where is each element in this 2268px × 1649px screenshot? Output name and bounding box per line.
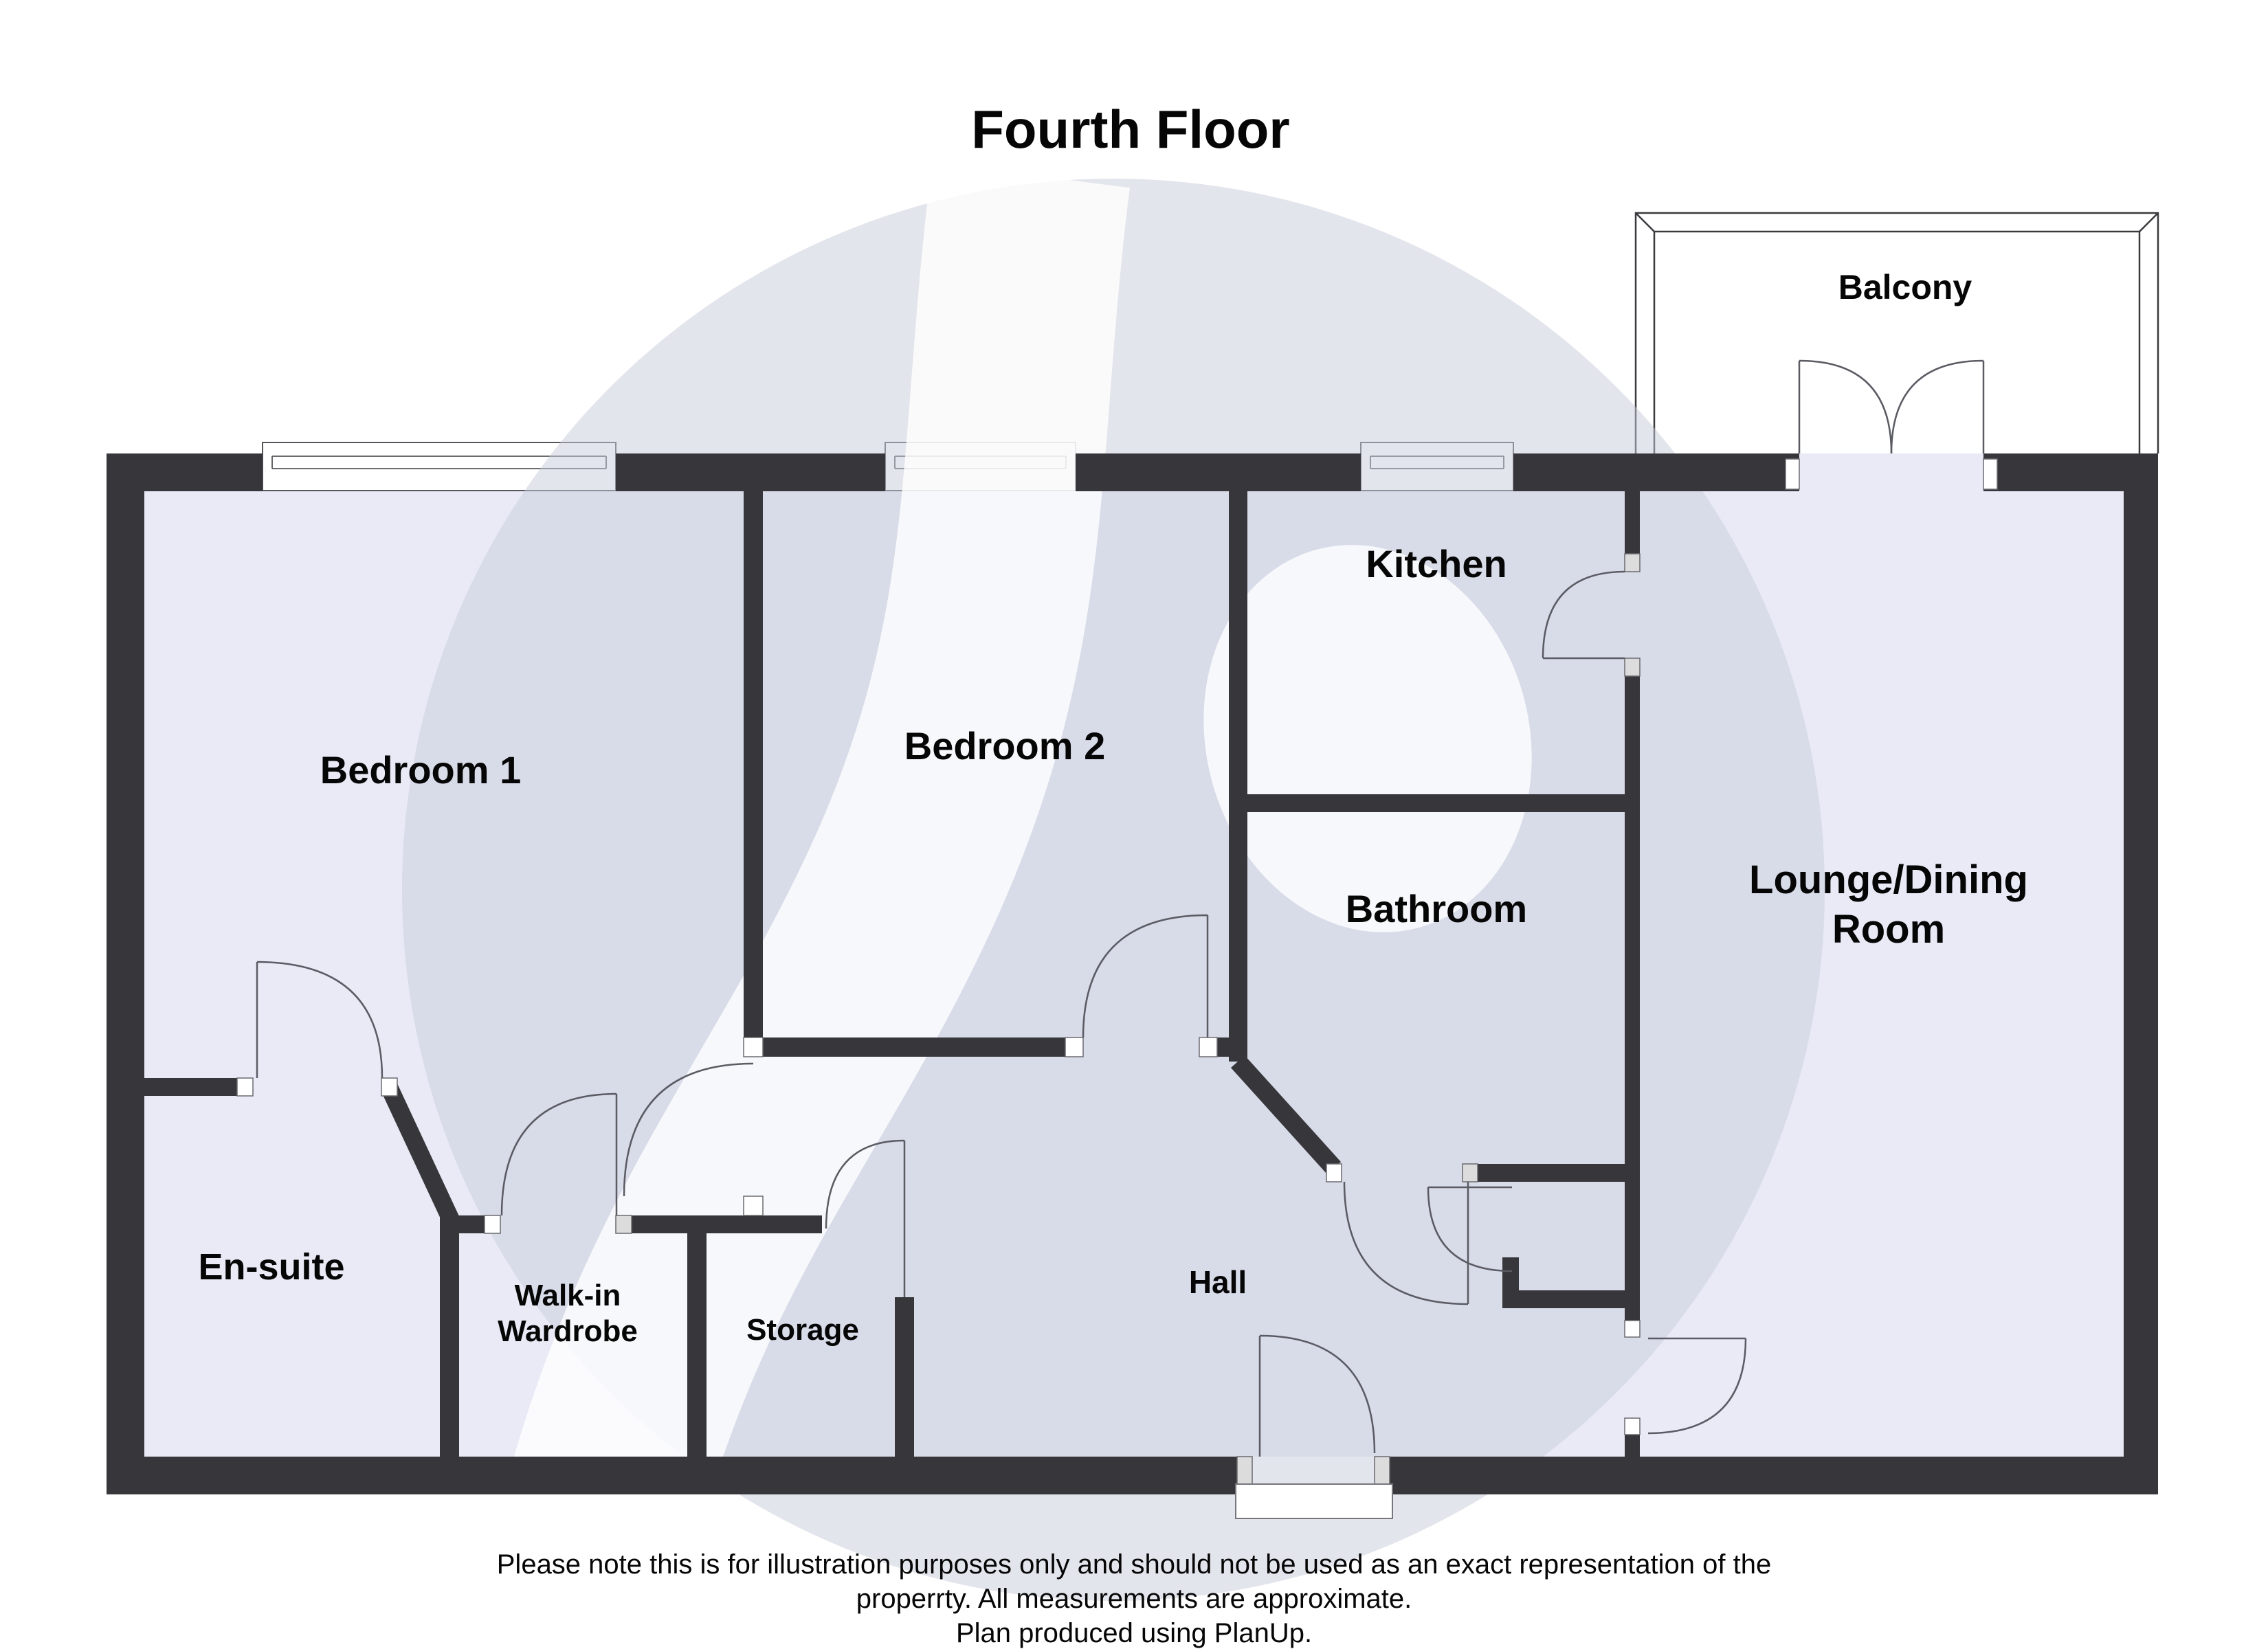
floor-plan-page: Fourth Floor Balcony Kitchen Bedroom 1 B…: [0, 0, 2268, 1649]
room-label-lounge-line1: Lounge/Dining: [1749, 857, 2028, 902]
room-label-wardrobe-line1: Walk-in: [515, 1279, 621, 1312]
room-label-storage: Storage: [746, 1313, 859, 1347]
room-label-lounge-line2: Room: [1832, 907, 1945, 952]
room-label-kitchen: Kitchen: [1366, 542, 1507, 585]
outer-wall-right: [2124, 453, 2158, 1494]
floor-plan-canvas: Fourth Floor Balcony Kitchen Bedroom 1 B…: [0, 0, 2268, 1649]
wall-cupboard-horizontal: [1502, 1290, 1625, 1308]
room-label-bedroom1: Bedroom 1: [320, 748, 522, 792]
wall-lounge-left-stub: [1625, 1435, 1640, 1457]
disclaimer-line-2: properrty. All measurements are approxim…: [856, 1584, 1412, 1614]
wall-bedroom1-bedroom2: [744, 491, 763, 1037]
wall-cupboard-vertical: [1502, 1257, 1519, 1290]
wall-wardrobe-storage: [687, 1233, 707, 1457]
room-label-wardrobe-line2: Wardrobe: [498, 1314, 638, 1348]
wall-ensuite-wardrobe: [440, 1218, 459, 1457]
watermark: [402, 175, 1825, 1601]
outer-wall-bottom: [107, 1457, 2158, 1494]
balcony-railing: [1636, 213, 2158, 453]
entrance-threshold: [1236, 1484, 1392, 1518]
room-label-bedroom2: Bedroom 2: [904, 724, 1106, 767]
wall-lounge-left-middle: [1625, 676, 1640, 1321]
disclaimer-line-1: Please note this is for illustration pur…: [497, 1549, 1772, 1580]
room-label-hall: Hall: [1189, 1264, 1247, 1300]
outer-wall-left: [107, 453, 144, 1494]
plan-title: Fourth Floor: [971, 99, 1290, 159]
room-label-bathroom: Bathroom: [1346, 887, 1527, 930]
room-label-ensuite: En-suite: [198, 1246, 344, 1288]
wall-kitchen-left: [1229, 491, 1247, 1062]
wall-bathroom-stub: [1478, 1164, 1625, 1182]
wall-kitchen-bathroom: [1247, 794, 1625, 812]
wall-bedroom2-hall-left: [763, 1037, 1065, 1057]
room-label-balcony: Balcony: [1838, 268, 1972, 306]
wall-storage-top: [632, 1215, 822, 1233]
wall-ensuite-top: [144, 1078, 237, 1096]
wall-lounge-left-upper: [1625, 491, 1640, 554]
wall-storage-hall: [895, 1297, 914, 1457]
disclaimer-line-3: Plan produced using PlanUp.: [956, 1618, 1312, 1648]
